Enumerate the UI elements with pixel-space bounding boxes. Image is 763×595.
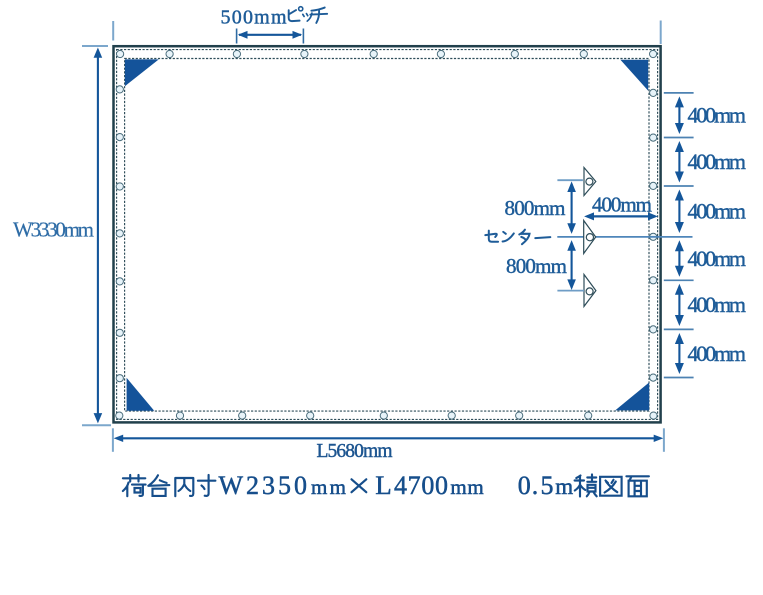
svg-text:400mm: 400mm [688, 246, 747, 271]
svg-text:800mm: 800mm [505, 196, 566, 220]
svg-text:800mm: 800mm [506, 254, 567, 278]
svg-text:L: L [375, 471, 392, 500]
svg-text:400mm: 400mm [688, 199, 747, 224]
svg-text:400mm: 400mm [592, 193, 652, 217]
svg-text:m: m [311, 475, 327, 499]
svg-text:m: m [555, 474, 573, 499]
svg-text:5: 5 [541, 471, 554, 500]
svg-text:m: m [450, 475, 466, 499]
svg-text:m: m [330, 475, 346, 499]
svg-text:L5680mm: L5680mm [317, 441, 393, 462]
svg-text:m: m [467, 475, 483, 499]
svg-text:400mm: 400mm [688, 103, 747, 128]
svg-text:400mm: 400mm [688, 341, 747, 366]
svg-text:500mm: 500mm [221, 6, 287, 28]
svg-text:4700: 4700 [394, 471, 448, 500]
svg-text:W3330mm: W3330mm [13, 218, 94, 242]
svg-text:400mm: 400mm [688, 149, 747, 174]
svg-text:0: 0 [518, 471, 531, 500]
svg-text:400mm: 400mm [688, 292, 747, 317]
svg-text:.: . [532, 471, 539, 500]
svg-text:W2350: W2350 [219, 471, 308, 500]
